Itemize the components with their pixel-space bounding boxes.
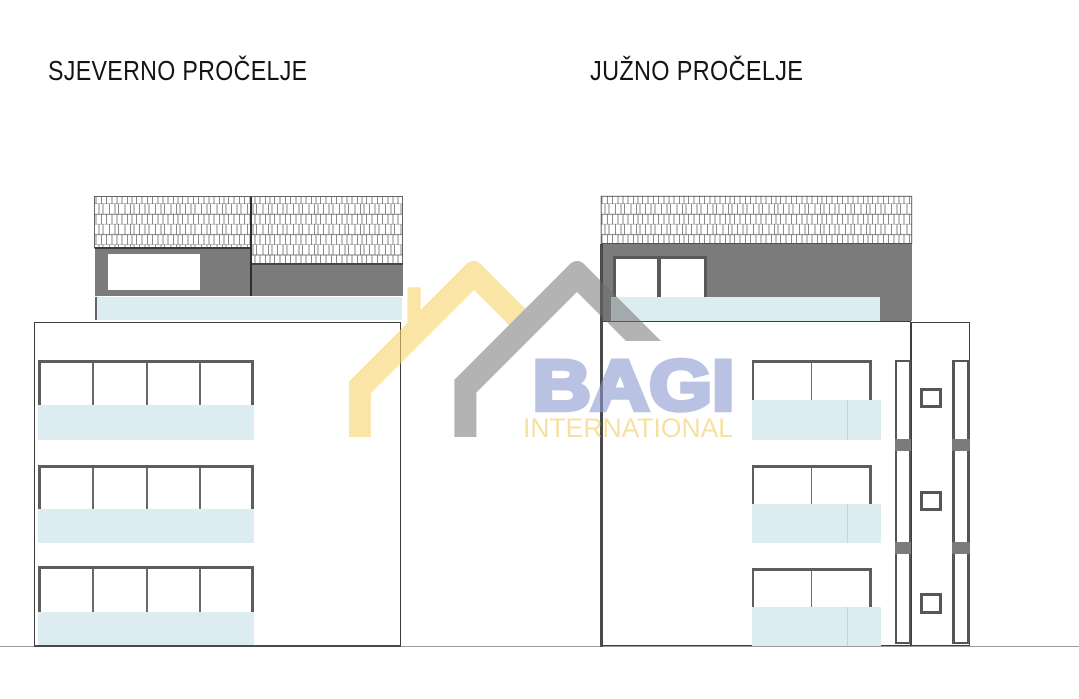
svg-text:INTERNATIONAL: INTERNATIONAL [523, 413, 733, 443]
